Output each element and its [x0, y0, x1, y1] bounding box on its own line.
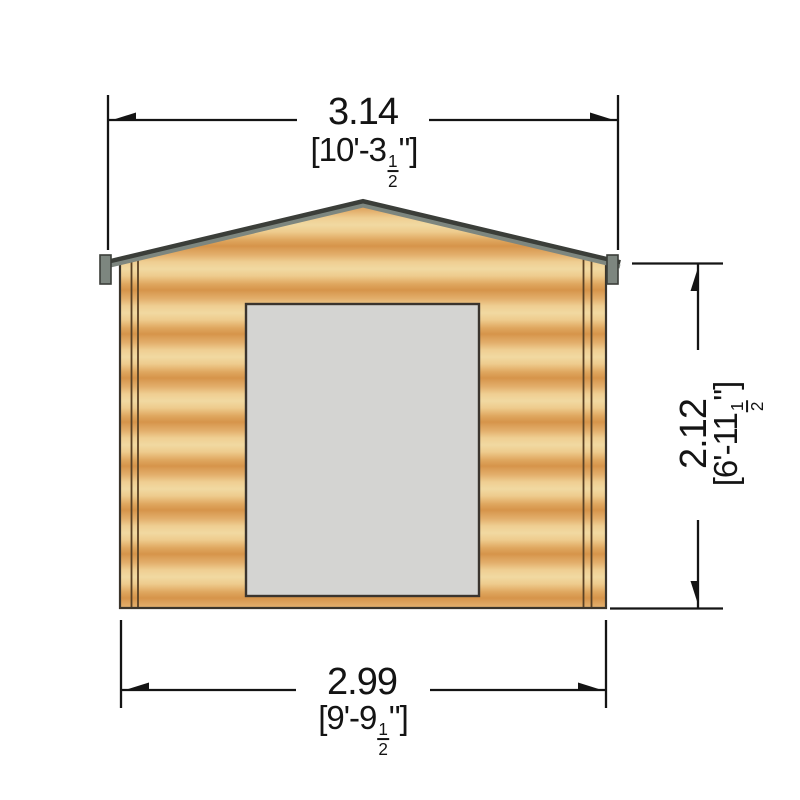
- imperial-suffix: "]: [399, 131, 418, 168]
- half-inch-fraction: 12: [728, 401, 767, 413]
- imperial-prefix: [10'-3: [311, 131, 387, 168]
- fraction-numerator: 1: [728, 401, 749, 413]
- height-imperial-label: [6'-1112"]: [709, 382, 767, 487]
- fraction-denominator: 2: [748, 402, 767, 412]
- half-inch-fraction: 12: [377, 720, 389, 759]
- fraction-numerator: 1: [387, 152, 399, 173]
- imperial-suffix: "]: [707, 382, 744, 401]
- fraction-denominator: 2: [378, 740, 388, 759]
- roof-trim-light-band: [106, 206, 620, 267]
- fraction-denominator: 2: [388, 172, 398, 191]
- left-eave-fascia: [100, 255, 111, 284]
- base-width-metric-label: 2.99: [327, 663, 397, 701]
- roof-trim-dark-band: [106, 203, 620, 264]
- door-opening: [246, 304, 479, 596]
- imperial-suffix: "]: [389, 699, 408, 736]
- fraction-numerator: 1: [377, 720, 389, 741]
- shed-technical-drawing: 3.14 [10'-312"] 2.99 [9'-912"] 2.12 [6'-…: [0, 0, 800, 800]
- top-width-imperial-label: [10'-312"]: [311, 133, 418, 191]
- imperial-prefix: [9'-9: [318, 699, 376, 736]
- half-inch-fraction: 12: [387, 152, 399, 191]
- right-eave-fascia: [607, 255, 618, 284]
- imperial-prefix: [6'-11: [707, 413, 744, 486]
- roof-trim: [100, 203, 620, 284]
- base-width-imperial-label: [9'-912"]: [318, 701, 408, 759]
- top-width-metric-label: 3.14: [328, 93, 398, 131]
